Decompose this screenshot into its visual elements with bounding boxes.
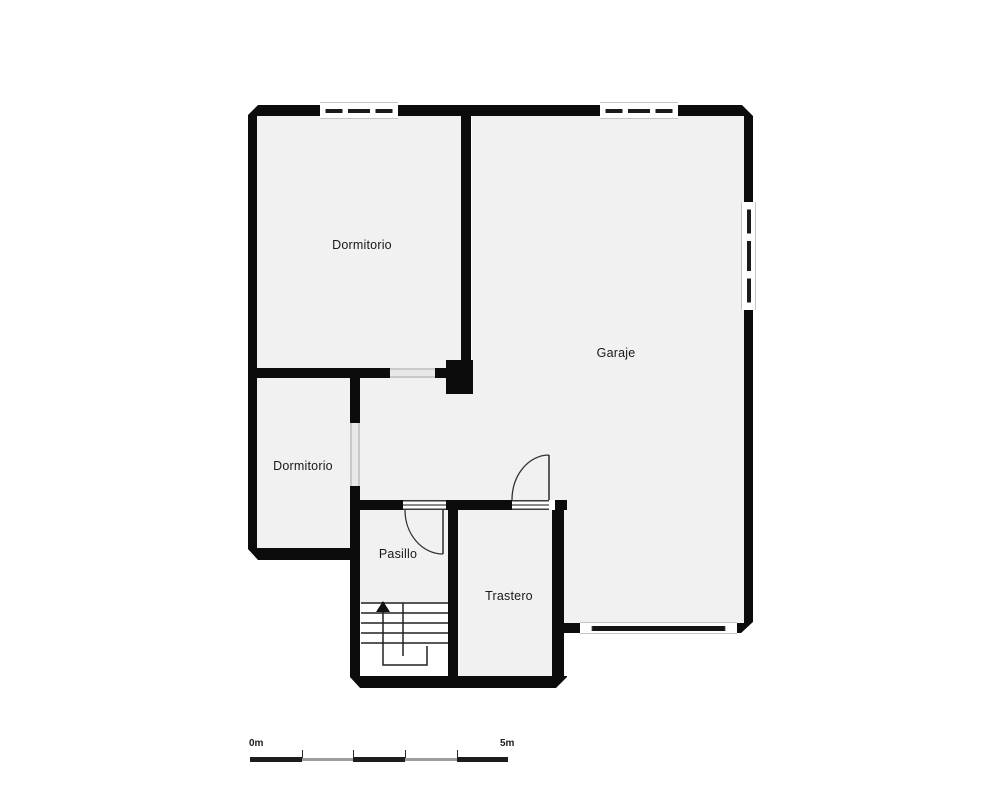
stairs-walkline <box>383 611 427 665</box>
doors-and-stairs-layer <box>0 0 1000 800</box>
room-label-dormitorio-left: Dormitorio <box>273 459 333 473</box>
floor-plan: Dormitorio Garaje Dormitorio Pasillo Tra… <box>0 0 1000 800</box>
scale-segment <box>302 758 353 761</box>
door-arc-garaje <box>512 455 549 500</box>
scale-segment <box>353 757 405 762</box>
scale-segment <box>250 757 302 762</box>
scale-segment <box>457 757 508 762</box>
scale-end-label: 5m <box>500 738 514 749</box>
scale-tick <box>302 750 303 758</box>
room-label-garaje: Garaje <box>597 346 636 360</box>
scale-segment <box>405 758 457 761</box>
room-label-dormitorio-top: Dormitorio <box>332 238 392 252</box>
scale-tick <box>405 750 406 758</box>
stairs <box>361 603 448 665</box>
room-label-pasillo: Pasillo <box>379 547 417 561</box>
room-label-trastero: Trastero <box>485 589 533 603</box>
scale-start-label: 0m <box>249 738 263 749</box>
